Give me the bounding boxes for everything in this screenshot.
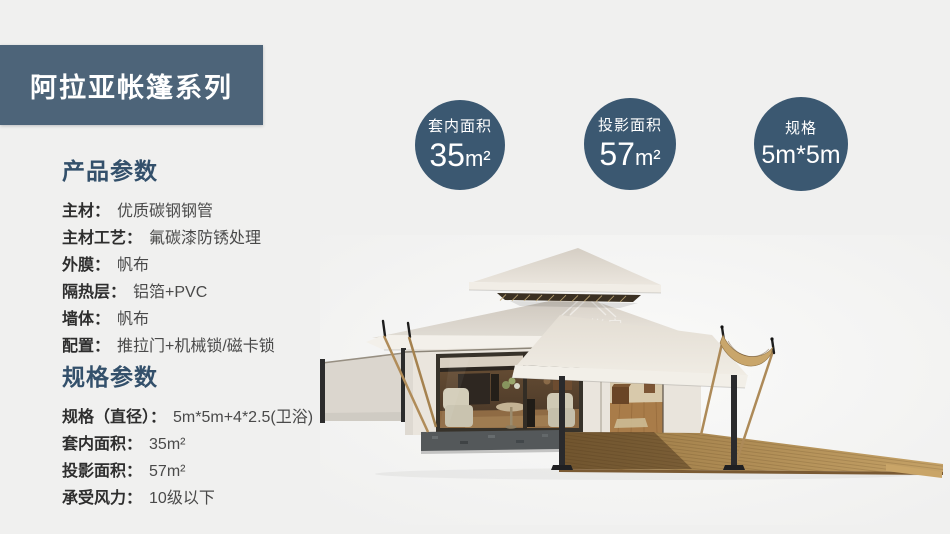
stat-value: 5m*5m [761, 140, 840, 171]
stat-label: 规格 [785, 117, 817, 138]
param-row-material: 主材：优质碳钢钢管 [62, 198, 392, 225]
stat-number: 57 [599, 136, 635, 172]
stat-number: 5m*5m [761, 141, 840, 169]
stat-number: 35 [429, 137, 465, 173]
stat-unit: m² [465, 146, 491, 171]
stat-circle-inner-area: 套内面积 35m² [415, 100, 505, 190]
series-title: 阿拉亚帐篷系列 [30, 66, 233, 105]
tent-render-illustration: 威利帐房 WELL TENT [320, 235, 950, 525]
stat-label: 投影面积 [598, 114, 662, 135]
stone-base [421, 430, 559, 454]
stat-value: 35m² [429, 138, 490, 176]
stat-circle-projected-area: 投影面积 57m² [584, 98, 676, 190]
stat-label: 套内面积 [428, 115, 492, 136]
product-spec-page: 阿拉亚帐篷系列 套内面积 35m² 投影面积 57m² 规格 5m*5m 产品参… [0, 0, 950, 534]
product-params-heading: 产品参数 [62, 152, 392, 186]
fence-post [320, 359, 325, 423]
stat-value: 57m² [599, 137, 660, 175]
stat-circle-size: 规格 5m*5m [754, 97, 848, 191]
series-title-banner: 阿拉亚帐篷系列 [0, 45, 263, 125]
stat-unit: m² [635, 145, 661, 170]
